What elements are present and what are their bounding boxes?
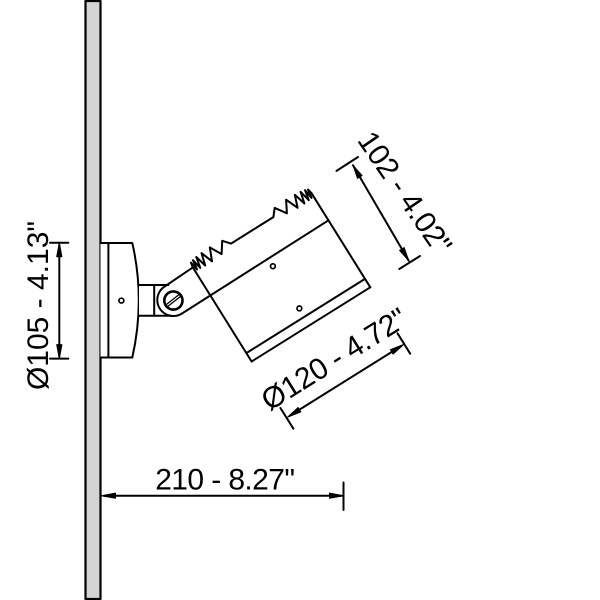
svg-text:Ø105 - 4.13": Ø105 - 4.13" [22,221,55,390]
svg-text:210 - 8.27": 210 - 8.27" [155,463,294,496]
svg-text:102 - 4.02": 102 - 4.02" [351,125,458,260]
